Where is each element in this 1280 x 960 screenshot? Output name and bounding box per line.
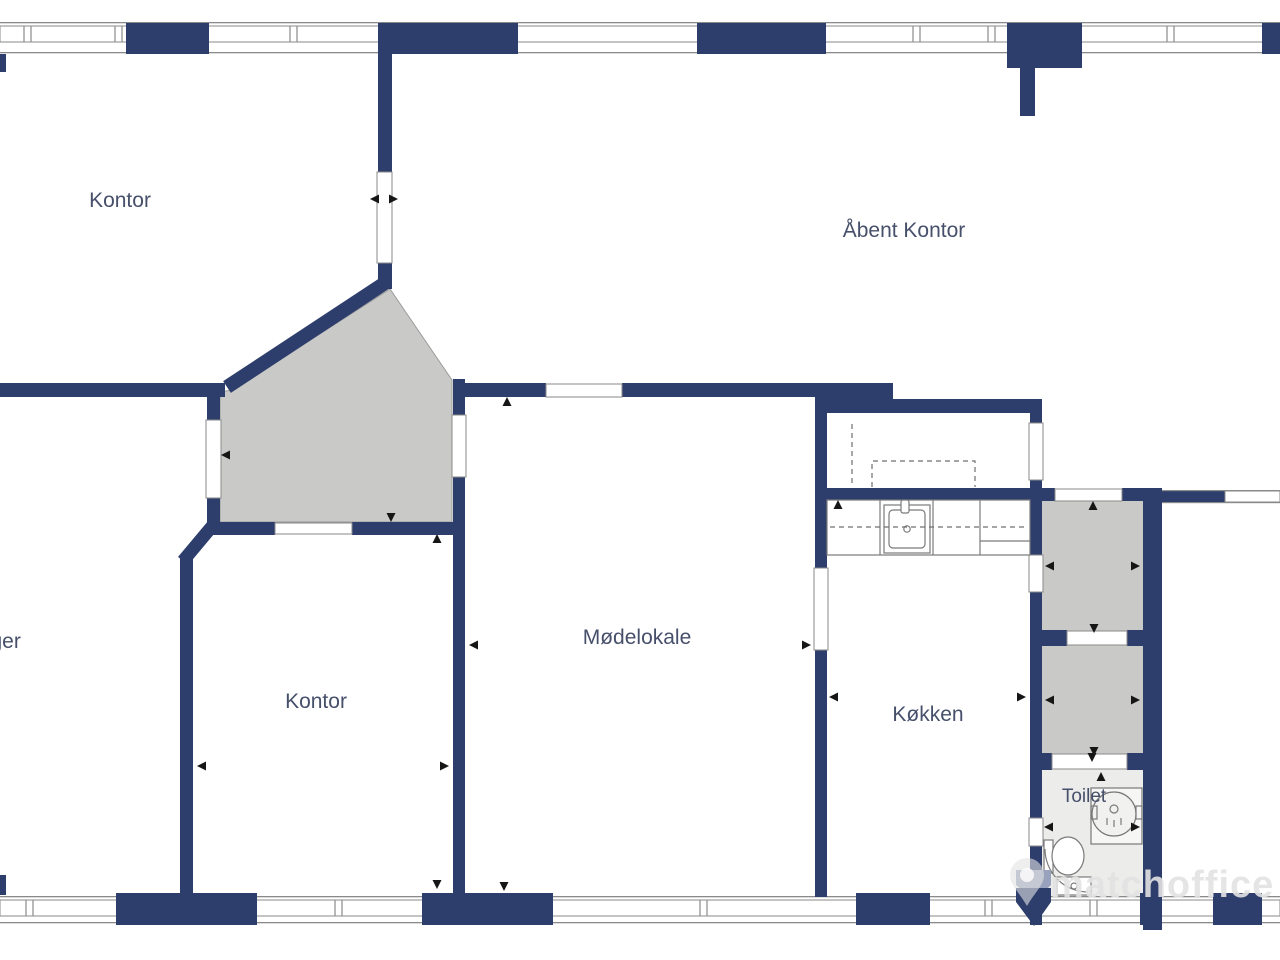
window-moedelokale-top (546, 384, 622, 397)
room-label-toilet: Toilet (1062, 786, 1107, 807)
watermark: matchoffice (1010, 858, 1274, 906)
room-label-lager: Lager (0, 630, 21, 653)
entrance-hall-floor (220, 289, 452, 522)
door-room1-room2 (1067, 631, 1127, 645)
door-hall-to-kontor2 (275, 523, 352, 534)
room-label-kontor-2: Kontor (285, 690, 347, 713)
room-label-kontor-1: Kontor (89, 189, 151, 212)
north-facade-window-band (0, 22, 1280, 72)
window-kontor1-right (377, 172, 392, 263)
room-label-moedelokale: Mødelokale (583, 626, 692, 649)
kitchen-counter (827, 500, 1030, 555)
door-koekken-toilet (1029, 818, 1043, 846)
watermark-text: matchoffice (1050, 864, 1274, 906)
door-room1-top (1055, 489, 1122, 501)
door-hall-to-moedelokale (452, 415, 466, 477)
window-right-room-top (1225, 491, 1280, 502)
room-label-koekken: Køkken (892, 703, 963, 726)
window-hall-left (206, 420, 221, 498)
window-alcove-right (1029, 423, 1043, 480)
appliance-outline (852, 424, 975, 487)
window-moedelokale-koekken (814, 568, 828, 650)
room-label-aabent-kontor: Åbent Kontor (843, 219, 966, 242)
floorplan-svg: Kontor Åbent Kontor Lager Kontor Mødelok… (0, 0, 1280, 960)
door-koekken-room1 (1029, 555, 1043, 592)
floorplan-canvas: Kontor Åbent Kontor Lager Kontor Mødelok… (0, 0, 1280, 960)
gray-room-1-floor (1042, 500, 1143, 631)
gray-room-2-floor (1042, 645, 1143, 754)
